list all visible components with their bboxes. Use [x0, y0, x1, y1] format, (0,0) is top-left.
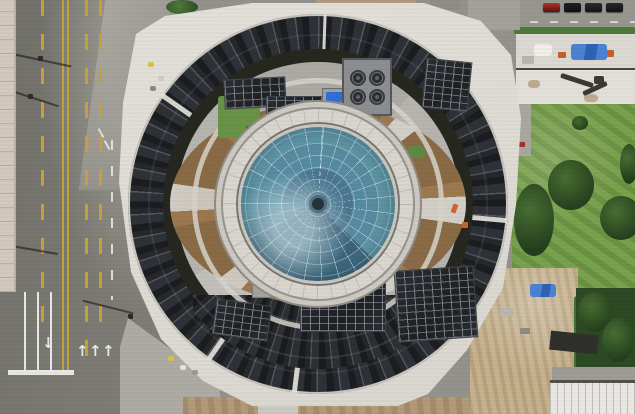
- parked-car: [564, 3, 581, 12]
- perimeter-path: [552, 367, 635, 380]
- dome-oculus: [312, 198, 324, 210]
- pole-shadow: [83, 300, 134, 315]
- lane-line-yellow-dashed-2: [85, 0, 88, 368]
- lane-line-white-2: [37, 292, 39, 372]
- top-street-lane-dash: [510, 21, 635, 23]
- material-pile-gray: [520, 328, 530, 334]
- lane-line-white-dashed: [111, 140, 113, 300]
- solar-array: [212, 298, 272, 341]
- blue-tarp: [571, 44, 607, 60]
- street-pole: [38, 56, 43, 61]
- center-line-yellow-2: [67, 0, 69, 372]
- blue-tarp: [530, 284, 556, 297]
- orange-equipment: [462, 222, 468, 228]
- garden-green-patch: [406, 146, 426, 158]
- material-pile-gray: [500, 308, 514, 316]
- aerial-photo-scene: ↓↑↑↑: [0, 0, 635, 414]
- street-pole: [128, 314, 133, 319]
- center-line-yellow-1: [62, 0, 64, 372]
- tree-canopy: [548, 160, 594, 210]
- hedge-row: [514, 27, 635, 34]
- roof-terrace: [516, 68, 635, 106]
- excavator-shadow: [560, 73, 594, 88]
- tree-canopy: [514, 184, 554, 256]
- tree-canopy: [620, 144, 635, 184]
- parked-car: [585, 3, 602, 12]
- lane-line-white-3: [50, 292, 52, 372]
- material-pile-orange: [558, 52, 566, 58]
- tree-canopy: [600, 196, 635, 240]
- solar-array: [422, 58, 473, 113]
- terrace-item: [158, 76, 164, 81]
- ribbed-canopy-roof: [550, 380, 635, 414]
- excavator-body: [594, 76, 604, 84]
- solar-array: [394, 265, 479, 342]
- tree-canopy: [572, 116, 588, 130]
- terrace-item: [150, 86, 156, 91]
- parked-car-row: [543, 3, 623, 12]
- material-pile-gray: [522, 56, 534, 64]
- lane-arrow-icon: ↑: [76, 344, 89, 359]
- hvac-fan-icon: [350, 70, 366, 86]
- material-pile-white: [534, 44, 552, 56]
- terrace-item: [180, 365, 186, 370]
- path-marker: [519, 142, 525, 147]
- terrace-item: [192, 370, 198, 375]
- terrace-item: [168, 356, 174, 361]
- lane-arrow-icon: ↓: [42, 336, 55, 351]
- terrace-item: [148, 62, 154, 67]
- stain-patch: [584, 94, 598, 102]
- parked-car: [606, 3, 623, 12]
- stain-patch: [528, 80, 540, 88]
- sidewalk: [0, 0, 16, 292]
- parked-car: [543, 3, 560, 12]
- lane-line-white-1: [24, 292, 26, 372]
- stop-line: [8, 370, 74, 375]
- hvac-fan-icon: [369, 70, 385, 86]
- lane-arrow-icon: ↑: [102, 344, 115, 359]
- street-pole: [28, 94, 33, 99]
- hvac-fan-icon: [369, 89, 385, 105]
- lane-line-yellow-dashed-3: [99, 0, 102, 330]
- tree-canopy: [602, 318, 634, 362]
- lane-arrow-icon: ↑: [89, 344, 102, 359]
- hvac-fan-icon: [350, 89, 366, 105]
- lane-line-yellow-dashed-1: [41, 0, 44, 340]
